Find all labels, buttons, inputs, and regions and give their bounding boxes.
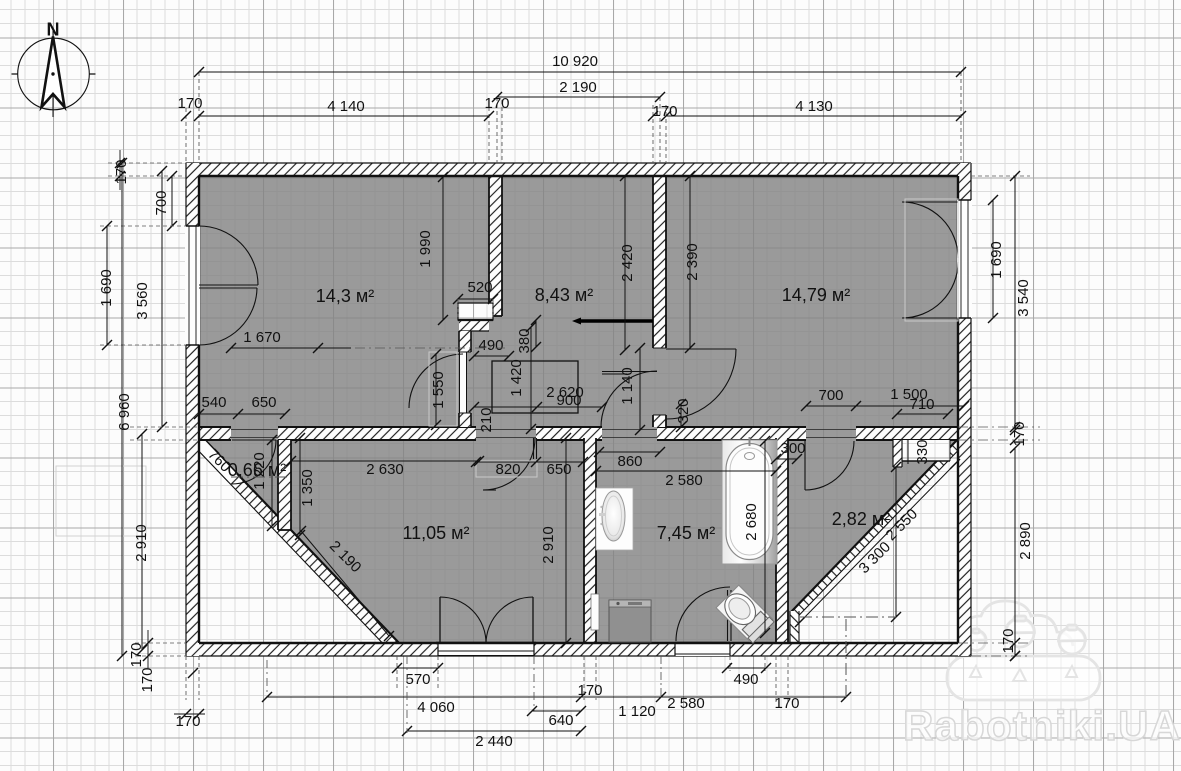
svg-text:650: 650 bbox=[251, 394, 276, 411]
svg-text:3 560: 3 560 bbox=[134, 282, 151, 320]
svg-text:170: 170 bbox=[128, 642, 145, 667]
svg-text:330: 330 bbox=[914, 439, 931, 464]
svg-text:1 670: 1 670 bbox=[243, 329, 281, 346]
svg-text:N: N bbox=[47, 20, 60, 40]
svg-text:820: 820 bbox=[495, 461, 520, 478]
svg-text:170: 170 bbox=[774, 695, 799, 712]
svg-text:170: 170 bbox=[1000, 628, 1017, 653]
svg-text:650: 650 bbox=[546, 461, 571, 478]
svg-text:900: 900 bbox=[556, 392, 581, 409]
svg-text:2 630: 2 630 bbox=[366, 461, 404, 478]
svg-text:1 140: 1 140 bbox=[619, 367, 636, 405]
svg-text:Rabotniki.UA: Rabotniki.UA bbox=[903, 702, 1180, 749]
svg-text:710: 710 bbox=[909, 396, 934, 413]
svg-text:170: 170 bbox=[139, 667, 156, 692]
svg-text:2 190: 2 190 bbox=[559, 79, 597, 96]
svg-text:860: 860 bbox=[617, 453, 642, 470]
svg-text:570: 570 bbox=[405, 671, 430, 688]
svg-text:0,66 м²: 0,66 м² bbox=[228, 460, 286, 480]
svg-text:7,45 м²: 7,45 м² bbox=[657, 523, 715, 543]
svg-text:14,79 м²: 14,79 м² bbox=[782, 285, 850, 305]
svg-text:170: 170 bbox=[177, 95, 202, 112]
svg-text:320: 320 bbox=[675, 398, 692, 423]
svg-text:1 550: 1 550 bbox=[430, 371, 447, 409]
svg-text:2 890: 2 890 bbox=[1017, 522, 1034, 560]
svg-text:380: 380 bbox=[516, 328, 533, 353]
svg-text:1 690: 1 690 bbox=[98, 269, 115, 307]
svg-text:2,82 м²: 2,82 м² bbox=[832, 509, 890, 529]
svg-text:700: 700 bbox=[818, 387, 843, 404]
svg-text:1 690: 1 690 bbox=[988, 241, 1005, 279]
svg-text:640: 640 bbox=[548, 712, 573, 729]
svg-text:540: 540 bbox=[201, 394, 226, 411]
svg-text:2 390: 2 390 bbox=[684, 243, 701, 281]
svg-text:14,3 м²: 14,3 м² bbox=[316, 286, 374, 306]
svg-text:2 910: 2 910 bbox=[540, 526, 557, 564]
svg-text:520: 520 bbox=[467, 279, 492, 296]
svg-text:2 910: 2 910 bbox=[133, 524, 150, 562]
svg-text:2 420: 2 420 bbox=[619, 244, 636, 282]
svg-text:1 420: 1 420 bbox=[508, 359, 525, 397]
svg-text:490: 490 bbox=[478, 337, 503, 354]
svg-text:170: 170 bbox=[175, 713, 200, 730]
svg-text:3 540: 3 540 bbox=[1015, 279, 1032, 317]
svg-text:170: 170 bbox=[484, 95, 509, 112]
svg-text:11,05 м²: 11,05 м² bbox=[402, 523, 469, 543]
svg-text:4 130: 4 130 bbox=[795, 98, 833, 115]
svg-text:170: 170 bbox=[577, 682, 602, 699]
svg-text:4 140: 4 140 bbox=[327, 98, 365, 115]
svg-text:210: 210 bbox=[478, 407, 495, 432]
svg-text:2 580: 2 580 bbox=[667, 695, 705, 712]
svg-text:490: 490 bbox=[733, 671, 758, 688]
svg-text:2 680: 2 680 bbox=[743, 503, 760, 541]
svg-text:2 440: 2 440 bbox=[475, 733, 513, 750]
svg-text:170: 170 bbox=[652, 103, 677, 120]
svg-text:10 920: 10 920 bbox=[552, 53, 598, 70]
svg-text:8,43 м²: 8,43 м² bbox=[535, 285, 593, 305]
svg-text:2 580: 2 580 bbox=[665, 472, 703, 489]
svg-text:1 120: 1 120 bbox=[618, 703, 656, 720]
svg-text:6 960: 6 960 bbox=[116, 393, 133, 431]
svg-text:1 350: 1 350 bbox=[299, 469, 316, 507]
svg-text:300: 300 bbox=[780, 440, 805, 457]
svg-text:4 060: 4 060 bbox=[417, 699, 455, 716]
svg-text:1 990: 1 990 bbox=[417, 230, 434, 268]
